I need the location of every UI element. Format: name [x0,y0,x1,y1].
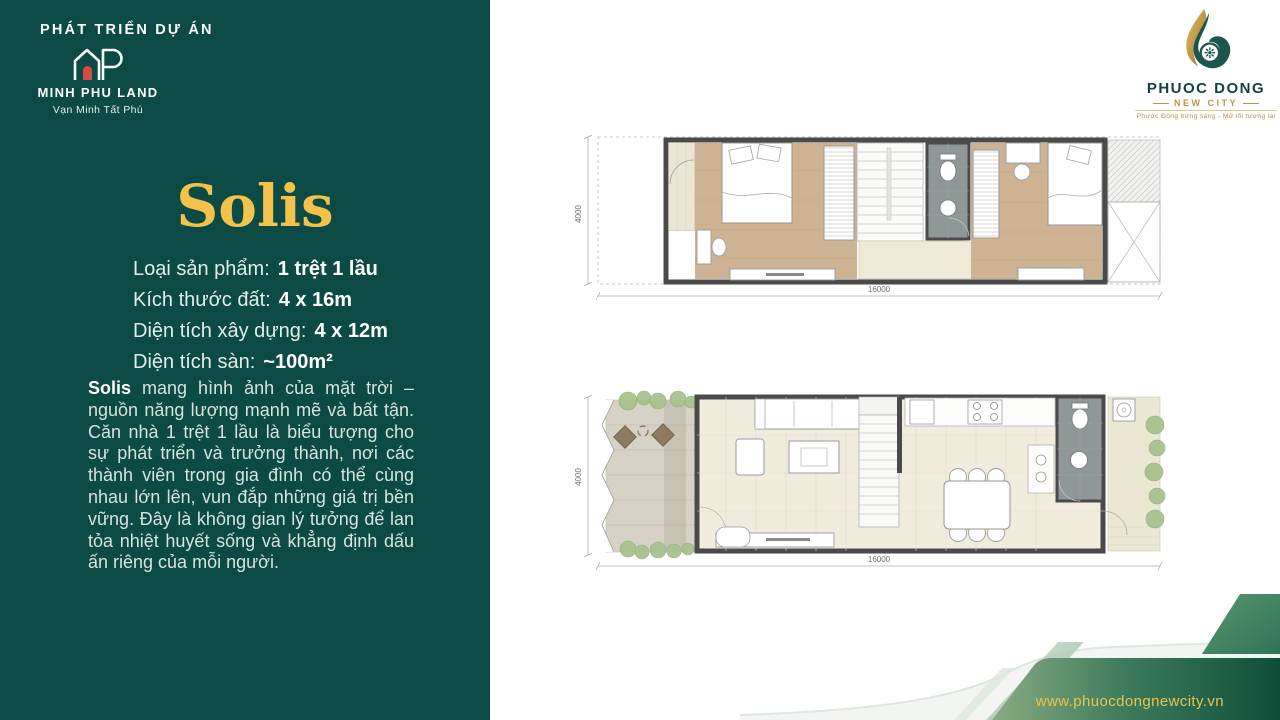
spec-build-area: Diện tích xây dựng: 4 x 12m [133,320,388,351]
project-logo-block: PHUOC DONG NEW CITY Phước Đông bừng sáng… [1135,8,1277,120]
footer-decoration: www.phuocdongnewcity.vn [740,590,1280,720]
ground-floor-plan-svg: 4000 16000 [570,385,1180,575]
balcony [669,143,695,231]
desk [697,230,711,264]
minh-phu-land-logo-icon [70,46,126,82]
project-name: PHUOC DONG [1135,80,1277,97]
ornament-line-left [1153,103,1169,104]
dining-area [944,469,1010,542]
developer-logo-block: MINH PHU LAND Vạn Minh Tất Phú [36,46,160,116]
description-lead: Solis [88,378,131,398]
product-specs: Loại sản phẩm: 1 trệt 1 lầu Kích thước đ… [133,258,388,382]
spec-lot-size: Kích thước đất: 4 x 16m [133,289,388,320]
spec-value: 4 x 12m [314,320,387,343]
spec-value: 1 trệt 1 lầu [278,258,378,281]
corner-triangle [1202,594,1280,654]
stair-wall [897,397,902,473]
sink [1071,452,1088,469]
ground-floor-plan: 4000 16000 [570,385,1180,575]
tv-cabinet [1018,268,1084,280]
coffee-table [789,441,839,473]
spec-label: Kích thước đất: [133,289,271,312]
wardrobe [973,150,999,238]
ground-plan-depth-dimension: 4000 [574,468,583,486]
front-patio [598,391,697,559]
dining-table [944,481,1010,529]
website-link[interactable]: www.phuocdongnewcity.vn [1036,693,1224,710]
ground-plan-width-dimension: 16000 [868,555,891,564]
rear-yard [1103,397,1165,551]
upper-bathroom [927,143,969,239]
brochure-page: PHÁT TRIỂN DỰ ÁN MINH PHU LAND Vạn Minh … [0,0,1280,720]
product-title: Solis [130,176,380,236]
toilet [940,161,956,181]
second-bedroom [971,143,1102,280]
roof-hatch-area [1108,140,1160,202]
upper-floor-plan-svg: 4000 16000 [570,130,1180,305]
spec-label: Loại sản phẩm: [133,258,270,281]
project-subtitle: NEW CITY [1174,98,1238,108]
left-info-panel: PHÁT TRIỂN DỰ ÁN MINH PHU LAND Vạn Minh … [0,0,490,720]
wardrobe [824,146,854,240]
spec-product-type: Loại sản phẩm: 1 trệt 1 lầu [133,258,388,289]
green-band [992,658,1280,720]
chair [712,238,726,256]
developer-name: MINH PHU LAND [36,85,160,100]
upper-floor-plan: 4000 16000 [570,130,1180,305]
washing-machine [1113,399,1135,421]
desk [1006,143,1040,163]
ground-bathroom [1057,397,1103,501]
toilet [1072,409,1088,429]
ornament-line-right [1243,103,1259,104]
stairwell [857,143,923,241]
spec-value: 4 x 16m [279,289,352,312]
product-description: Solis mang hình ảnh của mặt trời – nguồn… [88,378,414,574]
upper-plan-depth-dimension: 4000 [574,205,583,223]
stairs [859,397,902,527]
project-tagline: Phước Đông bừng sáng - Mở lối tương lai [1135,113,1277,120]
section-label: PHÁT TRIỂN DỰ ÁN [40,22,214,38]
spec-label: Diện tích sàn: [133,351,255,374]
toilet-tank [940,154,956,160]
sink [940,200,956,216]
phuoc-dong-flame-icon [1175,8,1237,78]
spec-value: ~100m² [263,351,333,374]
chair [1014,164,1030,180]
master-bedroom [695,143,857,280]
kitchen-island [1028,445,1054,493]
description-body: mang hình ảnh của mặt trời – nguồn năng … [88,378,414,572]
upper-plan-width-dimension: 16000 [868,285,891,294]
void-area [1108,202,1160,282]
spec-label: Diện tích xây dựng: [133,320,306,343]
developer-slogan: Vạn Minh Tất Phú [36,104,160,116]
armchair [736,439,764,475]
sofa [755,399,873,429]
project-subtitle-row: NEW CITY [1135,98,1277,111]
